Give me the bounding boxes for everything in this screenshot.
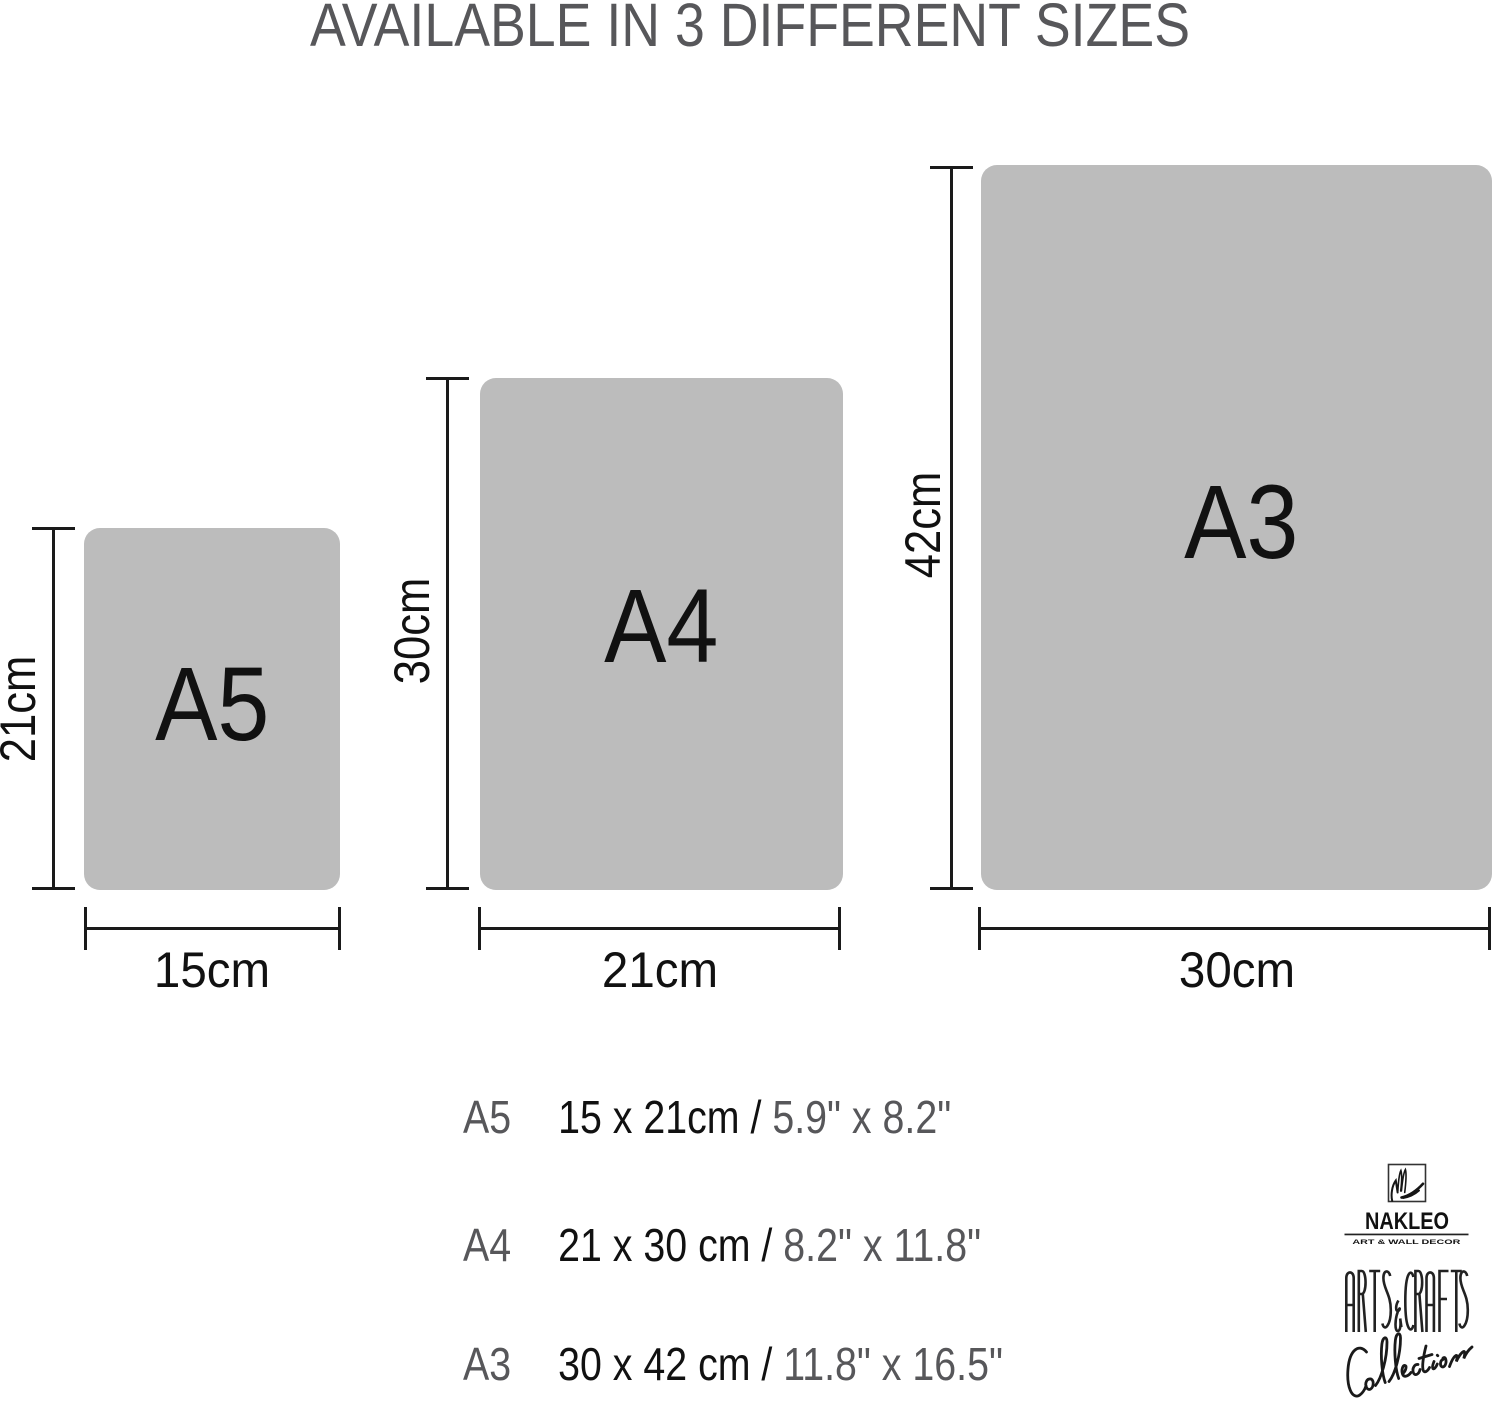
svg-text:ART & WALL DECOR: ART & WALL DECOR: [1352, 1239, 1460, 1246]
svg-text:NAKLEO: NAKLEO: [1365, 1208, 1449, 1235]
